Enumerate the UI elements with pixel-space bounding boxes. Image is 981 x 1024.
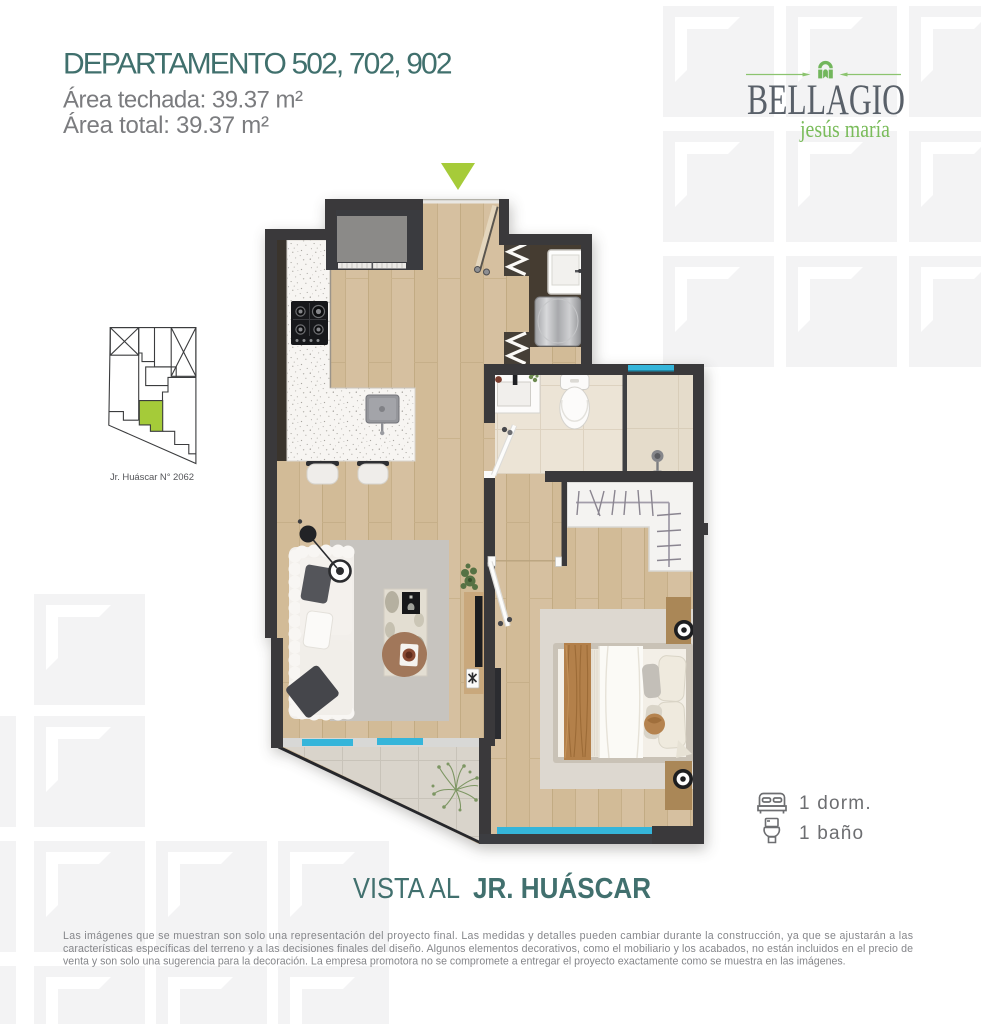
- svg-text:jesús maría: jesús maría: [799, 117, 890, 143]
- svg-text:DEPARTAMENTO 502, 702, 902: DEPARTAMENTO 502, 702, 902: [63, 48, 453, 81]
- svg-text:JR. HUÁSCAR: JR. HUÁSCAR: [473, 871, 651, 905]
- svg-text:VISTA AL: VISTA AL: [353, 873, 460, 905]
- svg-text:características específicas de: características específicas del terreno …: [63, 943, 913, 955]
- svg-text:Las imágenes que se muestran s: Las imágenes que se muestran son solo un…: [63, 930, 913, 942]
- svg-text:Área total: 39.37 m²: Área total: 39.37 m²: [63, 112, 269, 139]
- svg-text:1 dorm.: 1 dorm.: [799, 793, 872, 814]
- svg-text:Jr. Huáscar N° 2062: Jr. Huáscar N° 2062: [110, 472, 194, 483]
- svg-text:venta y son solo una sugerenci: venta y son solo una sugerencia para la …: [63, 956, 846, 968]
- svg-text:1 baño: 1 baño: [799, 823, 864, 844]
- svg-text:Área techada: 39.37 m²: Área techada: 39.37 m²: [63, 87, 303, 114]
